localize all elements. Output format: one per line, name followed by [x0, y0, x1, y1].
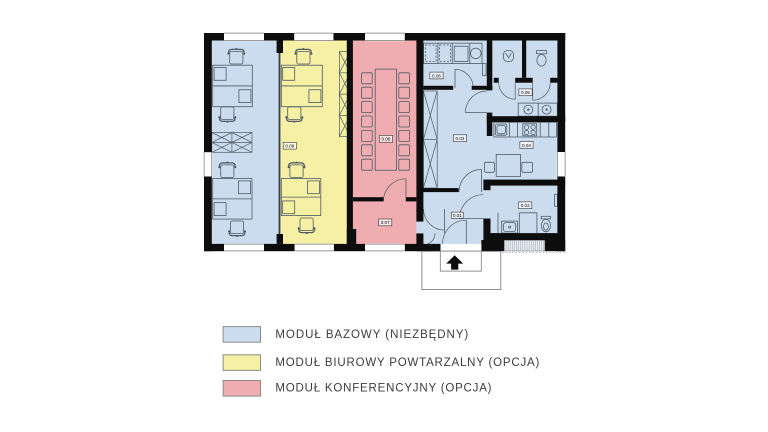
svg-text:0.04: 0.04 — [522, 143, 531, 148]
svg-text:MODUŁ KONFERENCYJNY (OPCJA): MODUŁ KONFERENCYJNY (OPCJA) — [275, 383, 492, 395]
svg-text:0.09: 0.09 — [285, 144, 294, 149]
svg-text:0.03: 0.03 — [456, 136, 465, 141]
svg-text:0.07: 0.07 — [381, 220, 390, 225]
svg-text:0.06: 0.06 — [432, 73, 441, 78]
svg-text:0.08: 0.08 — [382, 137, 391, 142]
svg-text:0.05: 0.05 — [521, 90, 530, 95]
svg-text:MODUŁ BIUROWY POWTARZALNY (OPC: MODUŁ BIUROWY POWTARZALNY (OPCJA) — [275, 357, 540, 369]
svg-text:0.02: 0.02 — [521, 203, 530, 208]
svg-text:MODUŁ BAZOWY (NIEZBĘDNY): MODUŁ BAZOWY (NIEZBĘDNY) — [275, 329, 469, 341]
svg-text:0.01: 0.01 — [453, 213, 462, 218]
